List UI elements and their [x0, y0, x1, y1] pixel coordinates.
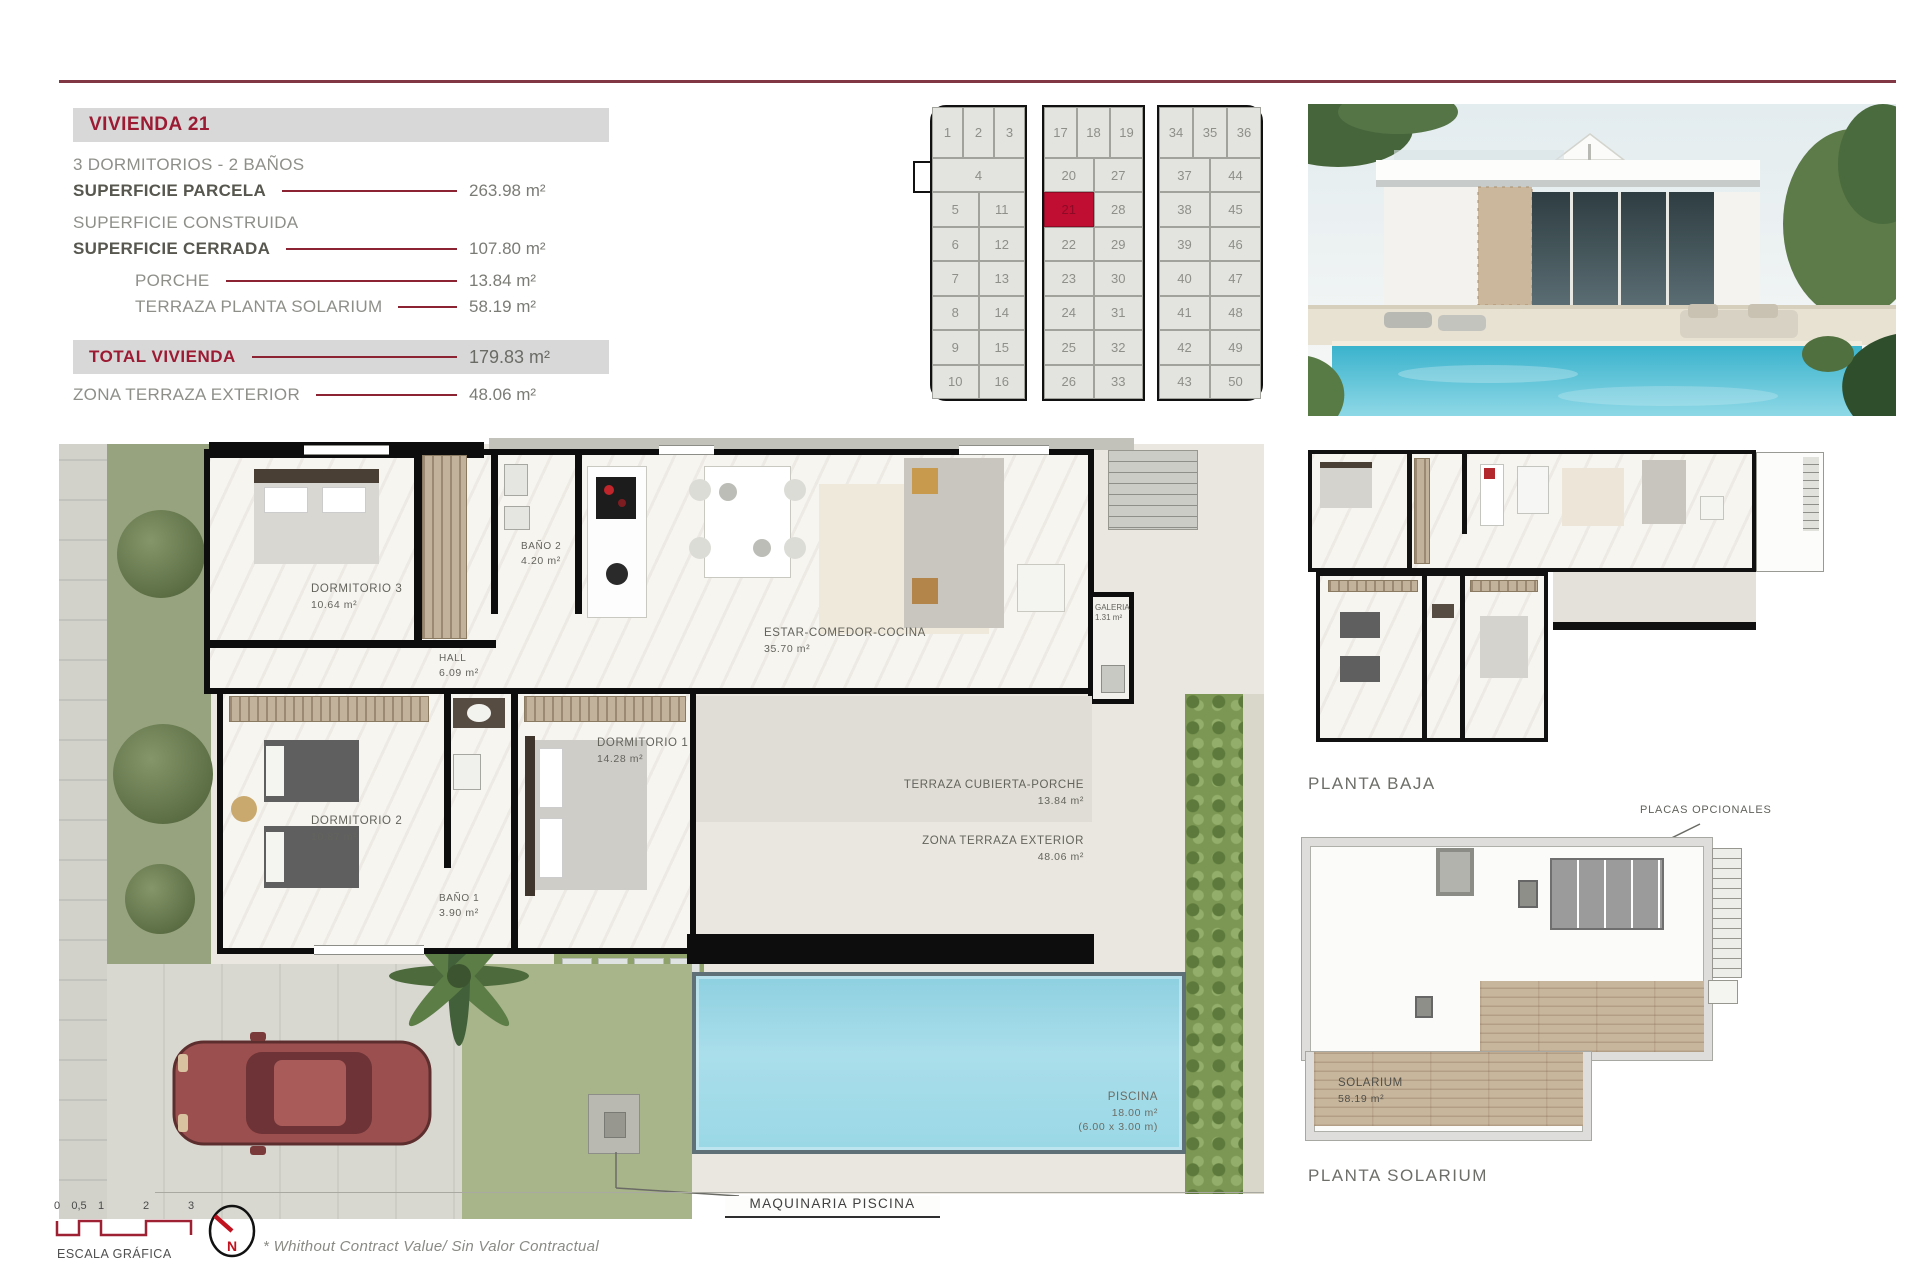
plot-cell-22: 22: [1044, 227, 1094, 261]
surface-row: ZONA TERRAZA EXTERIOR 48.06 m²: [73, 384, 609, 406]
wall: [491, 449, 498, 614]
sidewalk-strip: [59, 444, 108, 1219]
leader-line: [398, 306, 457, 308]
plot-cell-4: 4: [932, 158, 1025, 192]
plot-cell-1: 1: [932, 107, 963, 158]
top-divider: [59, 80, 1896, 83]
surface-row: TERRAZA PLANTA SOLARIUM 58.19 m²: [73, 296, 609, 318]
scale-tick: 0,5: [71, 1200, 86, 1212]
scale-bar: 0 0,5 1 2 3: [50, 1195, 220, 1245]
galeria-label: GALERIA 1.31 m²: [1095, 603, 1130, 622]
placas-opcionales-label: PLACAS OPCIONALES: [1640, 804, 1772, 816]
sink: [504, 506, 530, 530]
plot-cell-2: 2: [963, 107, 994, 158]
plot-cell-14: 14: [979, 296, 1026, 330]
kitchen-island: [587, 466, 647, 618]
gravel-strip: [1243, 694, 1264, 1194]
hedge-right: [1185, 694, 1243, 1194]
surface-row: SUPERFICIE CONSTRUIDA: [73, 212, 609, 234]
headboard: [525, 736, 535, 896]
solarium-wood-upper: [1480, 981, 1704, 1052]
window: [959, 445, 1049, 455]
plot-cell-36: 36: [1227, 107, 1261, 158]
room-label: ZONA TERRAZA EXTERIOR48.06 m²: [904, 834, 1084, 864]
plot-cell-25: 25: [1044, 330, 1094, 364]
total-label: TOTAL VIVIENDA: [73, 347, 236, 367]
dining-table: [704, 466, 791, 578]
toilet: [453, 754, 481, 790]
plot-cell-32: 32: [1094, 330, 1144, 364]
plot-cell-40: 40: [1159, 261, 1210, 295]
plot-cell-37: 37: [1159, 158, 1210, 192]
plot-cell-21: 21: [1044, 192, 1094, 226]
plot-cell-43: 43: [1159, 365, 1210, 399]
room-label: HALL6.09 m²: [439, 652, 479, 680]
planta-solarium-label: PLANTA SOLARIUM: [1308, 1166, 1488, 1186]
toilet: [504, 464, 528, 496]
plot-cell-44: 44: [1210, 158, 1261, 192]
total-bar: TOTAL VIVIENDA 179.83 m²: [73, 340, 609, 374]
surface-row: SUPERFICIE CERRADA 107.80 m²: [73, 238, 609, 260]
plot-cell-41: 41: [1159, 296, 1210, 330]
solarium-label: SOLARIUM58.19 m²: [1338, 1076, 1403, 1106]
plot-cell-49: 49: [1210, 330, 1261, 364]
plot-cell-13: 13: [979, 261, 1026, 295]
plot-cell-47: 47: [1210, 261, 1261, 295]
villa-title-bar: VIVIENDA 21: [73, 108, 609, 142]
plot-cell-6: 6: [932, 227, 979, 261]
machinery-leader: [604, 1144, 754, 1204]
pool-machinery-label: MAQUINARIA PISCINA: [725, 1196, 940, 1218]
plot-cell-30: 30: [1094, 261, 1144, 295]
plot-cell-17: 17: [1044, 107, 1077, 158]
plot-cell-45: 45: [1210, 192, 1261, 226]
plot-cell-10: 10: [932, 365, 979, 399]
side-table: [231, 796, 257, 822]
pool-label: PISCINA 18.00 m² (6.00 x 3.00 m): [1078, 1090, 1158, 1134]
wall: [575, 449, 582, 614]
disclaimer-text: * Whithout Contract Value/ Sin Valor Con…: [263, 1238, 599, 1255]
roof-vent: [1415, 996, 1433, 1018]
plot-cell-42: 42: [1159, 330, 1210, 364]
bush: [125, 864, 195, 934]
plot-cell-38: 38: [1159, 192, 1210, 226]
north-letter: N: [227, 1238, 237, 1254]
porch-beam: [687, 934, 1094, 964]
bed-bath-subtitle: 3 DORMITORIOS - 2 BAÑOS: [73, 154, 609, 176]
window: [304, 445, 389, 455]
mini-upper-band: [1308, 450, 1756, 572]
plot-cell-35: 35: [1193, 107, 1227, 158]
vanity: [453, 698, 505, 728]
room-label: DORMITORIO 210.87 m²: [311, 814, 402, 844]
wall: [204, 640, 496, 648]
leader-line: [316, 394, 457, 396]
escala-grafica-label: ESCALA GRÁFICA: [57, 1247, 172, 1261]
plot-cell-28: 28: [1094, 192, 1144, 226]
leader-line: [252, 356, 457, 358]
galeria-annex: GALERIA 1.31 m²: [1088, 592, 1134, 704]
solarium-upper-deck: [1302, 838, 1712, 1060]
scale-tick: 2: [143, 1200, 149, 1212]
planta-baja-miniplan: [1308, 444, 1830, 755]
plot-cell-12: 12: [979, 227, 1026, 261]
plot-cell-7: 7: [932, 261, 979, 295]
parcel-boundary: [155, 1192, 1264, 1193]
room-label: ESTAR-COMEDOR-COCINA35.70 m²: [764, 626, 926, 656]
plot-cell-18: 18: [1077, 107, 1110, 158]
wall: [444, 688, 451, 868]
plot-cell-39: 39: [1159, 227, 1210, 261]
coffee-table: [1017, 564, 1065, 612]
grid-block-c: 3435363744384539464047414842494350: [1157, 105, 1263, 401]
villa-photo: [1308, 104, 1896, 416]
plot-cell-20: 20: [1044, 158, 1094, 192]
room-label: BAÑO 24.20 m²: [521, 540, 561, 568]
sofa: [904, 458, 1004, 628]
wardrobe: [422, 455, 467, 639]
window: [659, 445, 714, 455]
plan-sheet: VIVIENDA 21 3 DORMITORIOS - 2 BAÑOS SUPE…: [0, 0, 1920, 1280]
stair-landing: [1708, 980, 1738, 1004]
plot-cell-34: 34: [1159, 107, 1193, 158]
plot-cell-29: 29: [1094, 227, 1144, 261]
wall: [414, 449, 422, 645]
leader-line: [226, 280, 457, 282]
plot-cell-50: 50: [1210, 365, 1261, 399]
main-floor-plan: PISCINA 18.00 m² (6.00 x 3.00 m) GALERIA…: [59, 444, 1264, 1194]
bed: [254, 469, 379, 564]
plot-cell-5: 5: [932, 192, 979, 226]
scale-tick: 0: [54, 1200, 60, 1212]
chimney: [1436, 848, 1474, 896]
exterior-stairs: [1108, 450, 1198, 530]
grid-block-a: 12345116127138149151016: [930, 105, 1027, 401]
solarium-lower-deck: SOLARIUM58.19 m²: [1306, 1052, 1591, 1140]
solarium-stairs: [1712, 848, 1742, 978]
site-plan-grid: 1234511612713814915101617181920272128222…: [930, 105, 1263, 401]
wall: [511, 688, 518, 954]
room-label: DORMITORIO 310.64 m²: [311, 582, 402, 612]
plot-cell-15: 15: [979, 330, 1026, 364]
leader-line: [286, 248, 457, 250]
roof-vent: [1518, 880, 1538, 908]
scale-tick: 3: [188, 1200, 194, 1212]
total-value: 179.83 m²: [469, 347, 609, 368]
plot-cell-26: 26: [1044, 365, 1094, 399]
room-label: TERRAZA CUBIERTA-PORCHE13.84 m²: [894, 778, 1084, 808]
grid-block-b: 1718192027212822292330243125322633: [1042, 105, 1145, 401]
surface-row: SUPERFICIE PARCELA 263.98 m²: [73, 180, 609, 202]
room-label: BAÑO 13.90 m²: [439, 892, 479, 920]
plot-cell-27: 27: [1094, 158, 1144, 192]
mini-porch: [1553, 572, 1756, 630]
villa-title: VIVIENDA 21: [73, 114, 210, 136]
plot-cell-23: 23: [1044, 261, 1094, 295]
plot-cell-46: 46: [1210, 227, 1261, 261]
plot-cell-8: 8: [932, 296, 979, 330]
mini-lower-band: [1316, 572, 1548, 742]
planta-baja-label: PLANTA BAJA: [1308, 774, 1436, 794]
plot-cell-3: 3: [994, 107, 1025, 158]
wardrobe: [229, 696, 429, 722]
villa-photo-art: [1308, 104, 1896, 416]
north-arrow: N: [205, 1203, 259, 1263]
pool: PISCINA 18.00 m² (6.00 x 3.00 m): [692, 972, 1186, 1154]
plot-cell-48: 48: [1210, 296, 1261, 330]
plot-cell-19: 19: [1110, 107, 1143, 158]
plot-cell-9: 9: [932, 330, 979, 364]
plot-cell-11: 11: [979, 192, 1026, 226]
plot-cell-24: 24: [1044, 296, 1094, 330]
surface-row: PORCHE 13.84 m²: [73, 270, 609, 292]
window: [314, 945, 424, 955]
bush: [113, 724, 213, 824]
wardrobe: [524, 696, 686, 722]
bed: [264, 740, 359, 802]
bush: [117, 510, 205, 598]
planta-solarium-plan: SOLARIUM58.19 m²: [1302, 838, 1740, 1145]
plot-cell-31: 31: [1094, 296, 1144, 330]
room-label: DORMITORIO 114.28 m²: [597, 736, 688, 766]
leader-line: [282, 190, 457, 192]
scale-tick: 1: [98, 1200, 104, 1212]
plot-cell-16: 16: [979, 365, 1026, 399]
mini-terrace-outline: [1756, 452, 1824, 572]
plot-cell-33: 33: [1094, 365, 1144, 399]
solar-panels: [1550, 858, 1664, 930]
info-panel: VIVIENDA 21 3 DORMITORIOS - 2 BAÑOS SUPE…: [73, 108, 609, 418]
